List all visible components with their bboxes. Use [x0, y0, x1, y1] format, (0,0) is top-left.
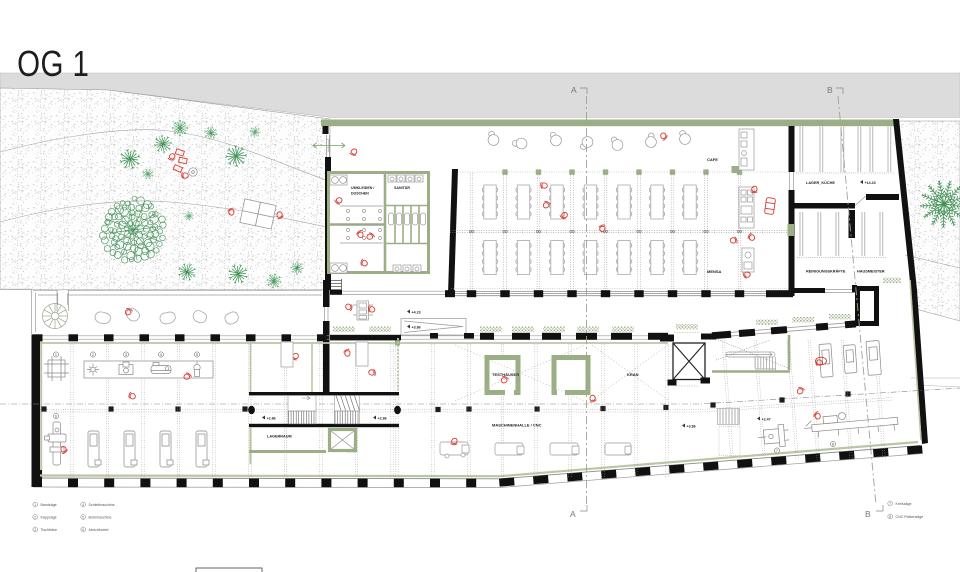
svg-text:KRAN: KRAN: [627, 372, 639, 377]
svg-text:7: 7: [889, 502, 891, 506]
svg-text:Schleifmaschine: Schleifmaschine: [89, 503, 115, 507]
svg-text:5: 5: [196, 353, 198, 357]
svg-text:LAGERRAUM: LAGERRAUM: [267, 435, 292, 439]
svg-text:OG 1: OG 1: [17, 43, 89, 83]
svg-text:CAFE: CAFE: [707, 157, 718, 162]
svg-text:6: 6: [55, 415, 57, 419]
svg-text:8: 8: [832, 443, 834, 447]
svg-text:4: 4: [160, 353, 162, 357]
svg-text:UMKLEIDEN /: UMKLEIDEN /: [351, 186, 374, 190]
svg-text:REINIGUNGSKRÄFTE: REINIGUNGSKRÄFTE: [806, 270, 846, 274]
svg-text:5: 5: [82, 515, 84, 519]
svg-text:Kreissäge: Kreissäge: [896, 502, 912, 506]
svg-text:A: A: [571, 85, 577, 95]
svg-text:A: A: [570, 509, 576, 519]
svg-text:Bohrmaschine: Bohrmaschine: [89, 515, 112, 519]
svg-text:+14.23: +14.23: [865, 181, 876, 185]
svg-text:4: 4: [82, 503, 84, 507]
svg-text:8: 8: [889, 515, 891, 519]
svg-text:3: 3: [125, 353, 127, 357]
svg-text:+2.47: +2.47: [762, 418, 771, 422]
svg-text:2: 2: [92, 353, 94, 357]
svg-text:B: B: [827, 85, 833, 95]
svg-text:Tischfräse: Tischfräse: [41, 528, 57, 532]
svg-text:CNC Plattensäge: CNC Plattensäge: [896, 515, 924, 519]
svg-text:1: 1: [55, 353, 57, 357]
svg-text:1: 1: [34, 503, 36, 507]
svg-text:SANITÄR: SANITÄR: [394, 186, 410, 190]
svg-text:+4.23: +4.23: [412, 311, 421, 315]
svg-text:+3.86: +3.86: [687, 425, 696, 429]
svg-text:7: 7: [776, 449, 778, 453]
svg-text:Abrichthobel: Abrichthobel: [89, 528, 109, 532]
svg-text:HAUSMEISTER: HAUSMEISTER: [857, 270, 885, 274]
svg-text:Bandsäge: Bandsäge: [41, 503, 57, 507]
svg-text:3: 3: [34, 528, 36, 532]
svg-text:LAGER_KÜCHE: LAGER_KÜCHE: [806, 180, 835, 185]
svg-text:6: 6: [82, 528, 84, 532]
svg-text:B: B: [865, 509, 871, 519]
svg-text:+2.86: +2.86: [378, 417, 387, 421]
svg-text:MASCHINENHALLE / CNC: MASCHINENHALLE / CNC: [492, 423, 542, 428]
svg-text:Kappsäge: Kappsäge: [41, 515, 57, 519]
svg-text:DUSCHEN: DUSCHEN: [351, 192, 369, 196]
svg-text:+2.86: +2.86: [267, 417, 276, 421]
svg-text:MENSA: MENSA: [707, 269, 722, 274]
svg-text:+3.86: +3.86: [412, 326, 421, 330]
svg-text:2: 2: [34, 515, 36, 519]
